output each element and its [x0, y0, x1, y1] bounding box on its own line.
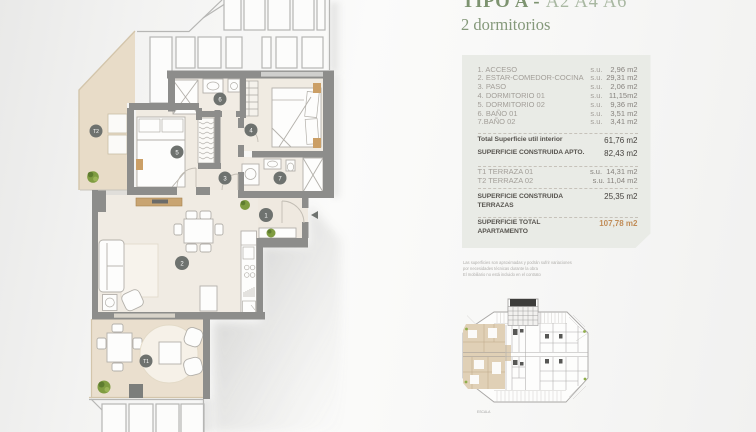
- svg-text:por necesidades técnicas duran: por necesidades técnicas durante la obra: [463, 266, 539, 271]
- svg-text:El mobiliario no está incluido: El mobiliario no está incluido en el con…: [463, 272, 542, 277]
- svg-text:Las superficies son aproximada: Las superficies son aproximadas y podrán…: [463, 260, 572, 265]
- svg-text:ESCALA: ESCALA: [477, 410, 491, 414]
